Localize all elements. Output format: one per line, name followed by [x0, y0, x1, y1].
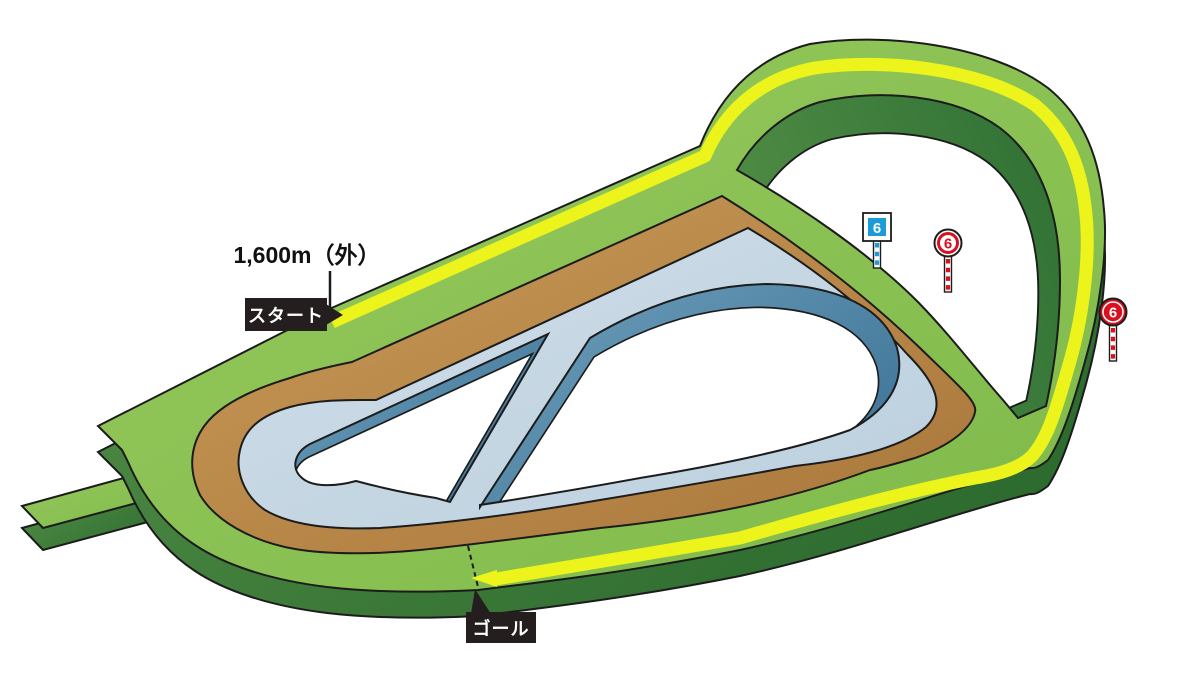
distance-label: 1,600m（外）: [233, 242, 380, 268]
furlong-marker-red-filled-value: 6: [1109, 305, 1117, 322]
course-map: 1,600m（外） スタート ゴール 6 6 6: [0, 0, 1198, 682]
start-label-text: スタート: [248, 306, 324, 326]
furlong-marker-red-filled: 6: [1100, 299, 1127, 362]
goal-label-text: ゴール: [473, 618, 530, 639]
furlong-marker-red-outline-value: 6: [944, 236, 952, 253]
course-map-stage: 1,600m（外） スタート ゴール 6 6 6: [0, 0, 1198, 682]
furlong-marker-blue-value: 6: [873, 220, 881, 237]
